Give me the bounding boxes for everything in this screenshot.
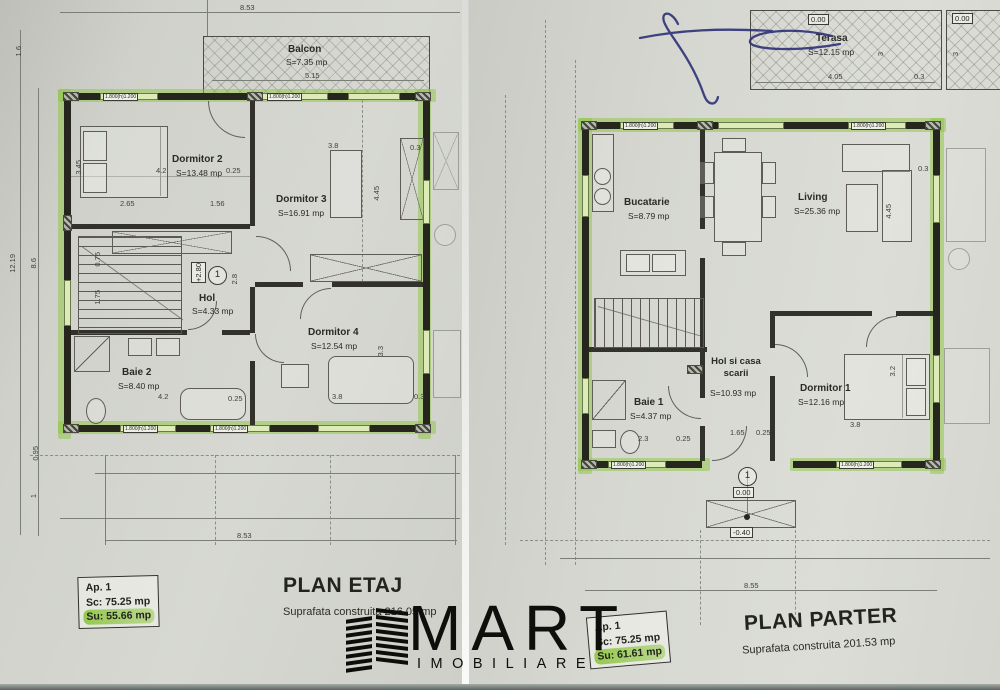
wall-segment [582, 122, 589, 468]
hob-symbol [594, 188, 611, 205]
apartment-info-box: Ap. 1 Sc: 75.25 mp Su: 55.66 mp [77, 575, 159, 629]
dimension-line [105, 540, 457, 541]
dimension-line [60, 12, 460, 13]
pen-signature [600, 0, 880, 120]
walkway-line [700, 530, 701, 625]
wardrobe-symbol [310, 254, 422, 282]
roof-line [560, 558, 990, 559]
window-segment [718, 122, 784, 129]
dim-label: 3.2 [888, 366, 897, 376]
room-name: Dormitor 4 [308, 327, 359, 338]
level-marker: -0.40 [730, 527, 753, 538]
window-segment [318, 425, 370, 432]
window-label: 1.800(h)1.200 [624, 123, 657, 129]
chair-symbol [762, 196, 776, 218]
room-name: Hol [199, 293, 215, 304]
hob-symbol [594, 168, 611, 185]
roof-line [60, 518, 460, 519]
room-name: Hol si casa scarii [698, 356, 774, 380]
window-segment [423, 330, 430, 374]
brand-tagline: IMOBILIARE [417, 656, 595, 672]
chair-symbol [722, 138, 746, 152]
plan-title: PLAN ETAJ [283, 574, 403, 598]
chair-symbol [700, 196, 714, 218]
wall-segment [222, 330, 250, 335]
extension-line [455, 455, 456, 545]
wall-segment [770, 376, 775, 461]
window-segment [582, 175, 589, 217]
sink-symbol [626, 254, 650, 272]
room-area: S=13.48 mp [176, 168, 222, 178]
dim-label: 1.75 [93, 290, 102, 305]
floorplan-photo: 8.53 1.6 12.19 8.6 0.95 1 Balcon S=7.35 … [0, 0, 1000, 690]
roof-line [520, 540, 990, 541]
wall-segment [64, 93, 71, 432]
neighbor-bed-symbol [944, 348, 990, 424]
window-segment [64, 280, 71, 326]
dim-label: 1 [29, 494, 38, 498]
apartment-su: Su: 55.66 mp [83, 608, 154, 625]
pillow-symbol [83, 163, 107, 193]
wall-segment [250, 100, 255, 226]
hatch-pier [582, 122, 596, 129]
window-segment [933, 175, 940, 223]
extension-line [545, 20, 546, 565]
hatch-pier [64, 216, 71, 230]
roof-line [95, 473, 460, 474]
room-area: S=16.91 mp [278, 208, 324, 218]
wardrobe-symbol [112, 231, 232, 254]
room-area: S=7.35 mp [286, 57, 327, 67]
window-label: 1.800(h)1.200 [612, 462, 645, 468]
dim-label: 8.53 [237, 531, 252, 540]
apartment-sc: Sc: 75.25 mp [86, 594, 151, 610]
dim-label: 0.3 [414, 392, 424, 401]
story-marker: 1 [738, 467, 757, 486]
window-segment [582, 378, 589, 414]
chair-symbol [722, 242, 746, 256]
room-name: Bucatarie [624, 197, 670, 208]
room-name: Baie 1 [634, 397, 663, 408]
neighbor-sofa-symbol [946, 148, 986, 242]
entry-steps-symbol [706, 500, 796, 528]
sink-symbol [128, 338, 152, 356]
room-name: Baie 2 [122, 367, 151, 378]
roof-line [30, 455, 460, 456]
dim-label: 3.3 [376, 346, 385, 356]
brand-wordmark: MART [408, 596, 628, 660]
dim-label: 4.45 [372, 186, 381, 201]
dim-label: 0.25 [228, 394, 243, 403]
dim-label: 0.3 [918, 164, 928, 173]
mart-building-icon [344, 602, 410, 678]
neighbor-wardrobe-symbol [433, 132, 459, 190]
extension-line [215, 455, 216, 545]
wall-segment [71, 224, 250, 229]
dim-label: 3.8 [850, 420, 860, 429]
room-name: Dormitor 3 [276, 194, 327, 205]
hatch-pier [64, 425, 78, 432]
dim-label: 5.15 [305, 71, 320, 80]
neighbor-plant-symbol [948, 248, 970, 270]
wall-segment [770, 311, 872, 316]
dim-label: 1.65 [730, 428, 745, 437]
toilet-symbol [620, 430, 640, 454]
room-area: S=8.79 mp [628, 211, 669, 221]
extension-line [207, 0, 208, 36]
hatch-pier [248, 93, 262, 100]
window-label: 1.800(h)1.200 [268, 94, 301, 100]
pillow-symbol [906, 388, 926, 416]
photo-seam [462, 0, 469, 690]
dim-label: 8.53 [240, 3, 255, 12]
sink-symbol [652, 254, 676, 272]
dim-label: 0.25 [226, 166, 241, 175]
shower-symbol [74, 336, 110, 372]
dim-label: 3.8 [328, 141, 338, 150]
stairs-symbol [594, 298, 704, 348]
room-area: S=4.37 mp [630, 411, 671, 421]
datum-dot [744, 514, 750, 520]
photo-edge [0, 684, 1000, 690]
room-area: S=4.33 mp [192, 306, 233, 316]
neighbor-plant-symbol [434, 224, 456, 246]
pillow-symbol [83, 131, 107, 161]
dim-label: 2.8 [230, 274, 239, 284]
extension-line [105, 455, 106, 545]
extension-line [20, 30, 21, 535]
hatch-pier [582, 461, 596, 468]
hatch-pier [416, 425, 430, 432]
dim-label: 0.75 [93, 252, 102, 267]
wall-segment [933, 122, 940, 468]
coffee-table-symbol [846, 184, 878, 232]
dim-label: 2.3 [638, 434, 648, 443]
window-segment [933, 355, 940, 403]
dim-label: 3.8 [332, 392, 342, 401]
dim-label: 4.45 [884, 204, 893, 219]
hatch-pier [64, 93, 78, 100]
story-marker: 1 [208, 266, 227, 285]
wall-segment [700, 426, 705, 461]
room-name: Dormitor 2 [172, 154, 223, 165]
sofa-symbol [842, 144, 910, 172]
dim-label: 8.55 [744, 581, 759, 590]
dim-label: 0.25 [676, 434, 691, 443]
dimension-line [212, 80, 424, 81]
chair-symbol [762, 162, 776, 184]
level-marker: 0.00 [733, 487, 754, 498]
wall-segment [255, 282, 303, 287]
pillow-symbol [906, 358, 926, 386]
sink-symbol [156, 338, 180, 356]
hatch-pier [416, 93, 430, 100]
room-area: S=8.40 mp [118, 381, 159, 391]
window-label: 1.800(h)1.200 [840, 462, 873, 468]
dim-label: 12.19 [8, 254, 17, 273]
dim-label: 3 [951, 52, 960, 56]
dim-label: 4.2 [158, 392, 168, 401]
hatch-pier [926, 122, 940, 129]
shower-symbol [592, 380, 626, 420]
chair-symbol [700, 162, 714, 184]
hatch-pier [698, 122, 712, 129]
extension-line [38, 88, 39, 536]
dining-table-symbol [714, 152, 762, 242]
dim-label: 1.56 [210, 199, 225, 208]
wall-segment [423, 93, 430, 432]
extension-line [575, 60, 576, 565]
chair-symbol [281, 364, 309, 388]
level-marker: +2.80 [191, 262, 206, 283]
room-area: S=12.54 mp [311, 341, 357, 351]
bed-symbol [330, 150, 362, 218]
window-label: 1.800(h)1.200 [214, 426, 247, 432]
wall-segment [896, 311, 933, 316]
dim-label: 0.3 [914, 72, 924, 81]
level-marker: 0.00 [952, 13, 973, 24]
window-label: 1.800(h)1.200 [124, 426, 157, 432]
room-area: S=10.93 mp [710, 388, 756, 398]
hatch-pier [926, 461, 940, 468]
room-area: S=25.36 mp [794, 206, 840, 216]
window-label: 1.800(h)1.200 [852, 123, 885, 129]
wall-segment [250, 361, 255, 425]
dim-label: 8.6 [29, 258, 38, 268]
neighbor-bed-symbol [433, 330, 461, 398]
dim-label: 0.25 [756, 428, 771, 437]
room-name: Living [798, 192, 827, 203]
room-name: Balcon [288, 44, 321, 55]
dim-label: 1.6 [14, 46, 23, 56]
window-segment [348, 93, 400, 100]
room-area: S=12.16 mp [798, 397, 844, 407]
window-label: 1.800(h)1.200 [104, 94, 137, 100]
window-segment [423, 180, 430, 224]
bathtub-symbol [180, 388, 246, 420]
wall-segment [250, 287, 255, 333]
room-name: Dormitor 1 [800, 383, 851, 394]
extension-line [330, 455, 331, 545]
extension-line [505, 95, 506, 545]
dim-label: 3.45 [74, 160, 83, 175]
dim-label: 0.3 [410, 143, 420, 152]
wall-segment [332, 282, 423, 287]
dim-label: 0.95 [31, 446, 40, 461]
dim-label: 4.2 [156, 166, 166, 175]
toilet-symbol [86, 398, 106, 424]
dim-label: 2.65 [120, 199, 135, 208]
dimension-line [585, 590, 937, 591]
sink-symbol [592, 430, 616, 448]
